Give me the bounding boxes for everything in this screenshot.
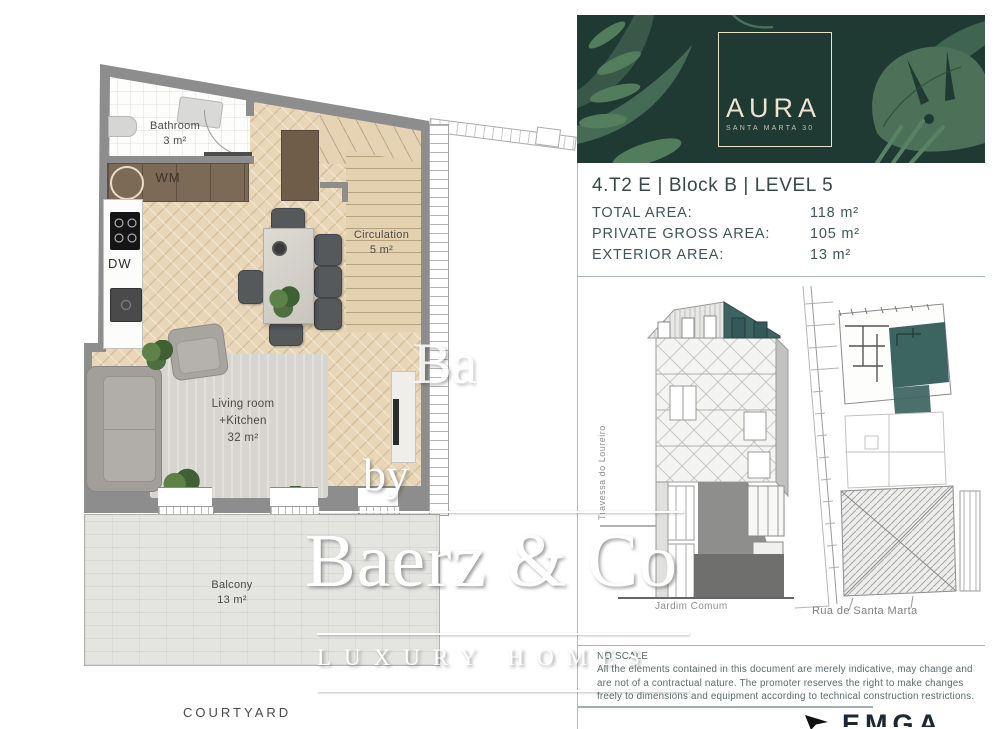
floorplan-brochure-page: Bathroom 3 m² WM DW Circulation 5 m² Liv… bbox=[0, 0, 1000, 729]
partner-logo-text: EMGA bbox=[842, 709, 1000, 727]
area-label: EXTERIOR AREA: bbox=[592, 247, 724, 263]
area-value: 13 m² bbox=[810, 247, 851, 263]
siteplan-caption: Rua de Santa Marta bbox=[812, 605, 918, 617]
street-side-label: Travessa do Loureiro bbox=[597, 388, 607, 520]
area-row: EXTERIOR AREA: 13 m² bbox=[592, 247, 982, 263]
area-row: PRIVATE GROSS AREA: 105 m² bbox=[592, 226, 982, 242]
cursor-arrow-icon bbox=[804, 713, 830, 729]
partner-logo-partial: EMGA bbox=[800, 711, 1000, 729]
area-label: PRIVATE GROSS AREA: bbox=[592, 226, 770, 242]
divider-bottom bbox=[578, 706, 873, 708]
divider-disclaimer bbox=[577, 645, 985, 646]
disclaimer-line: freely to dimensions and equipment accor… bbox=[597, 690, 989, 703]
site-plan-drawing bbox=[793, 286, 988, 616]
area-label: TOTAL AREA: bbox=[592, 205, 692, 221]
disclaimer: NO SCALE All the elements contained in t… bbox=[597, 650, 989, 704]
building-section-drawing bbox=[598, 286, 798, 616]
disclaimer-line: NO SCALE bbox=[597, 650, 989, 663]
project-logo-subtitle: SANTA MARTA 30 bbox=[726, 125, 821, 132]
disclaimer-line: are not of a contractual nature. The pro… bbox=[597, 677, 989, 690]
area-value: 118 m² bbox=[810, 205, 859, 221]
info-panel: AURA SANTA MARTA 30 4.T2 E | Block B | L… bbox=[0, 0, 1000, 729]
unit-title: 4.T2 E | Block B | LEVEL 5 bbox=[592, 175, 833, 197]
divider-areas bbox=[577, 276, 985, 277]
project-logo-title: AURA bbox=[726, 94, 821, 122]
logo-text-block: AURA SANTA MARTA 30 bbox=[721, 92, 828, 134]
project-banner: AURA SANTA MARTA 30 bbox=[577, 15, 985, 163]
area-row: TOTAL AREA: 118 m² bbox=[592, 205, 982, 221]
logo-frame: AURA SANTA MARTA 30 bbox=[718, 32, 832, 147]
section-caption: Jardim Comum bbox=[655, 601, 728, 612]
disclaimer-line: All the elements contained in this docum… bbox=[597, 663, 989, 676]
area-value: 105 m² bbox=[810, 226, 860, 242]
